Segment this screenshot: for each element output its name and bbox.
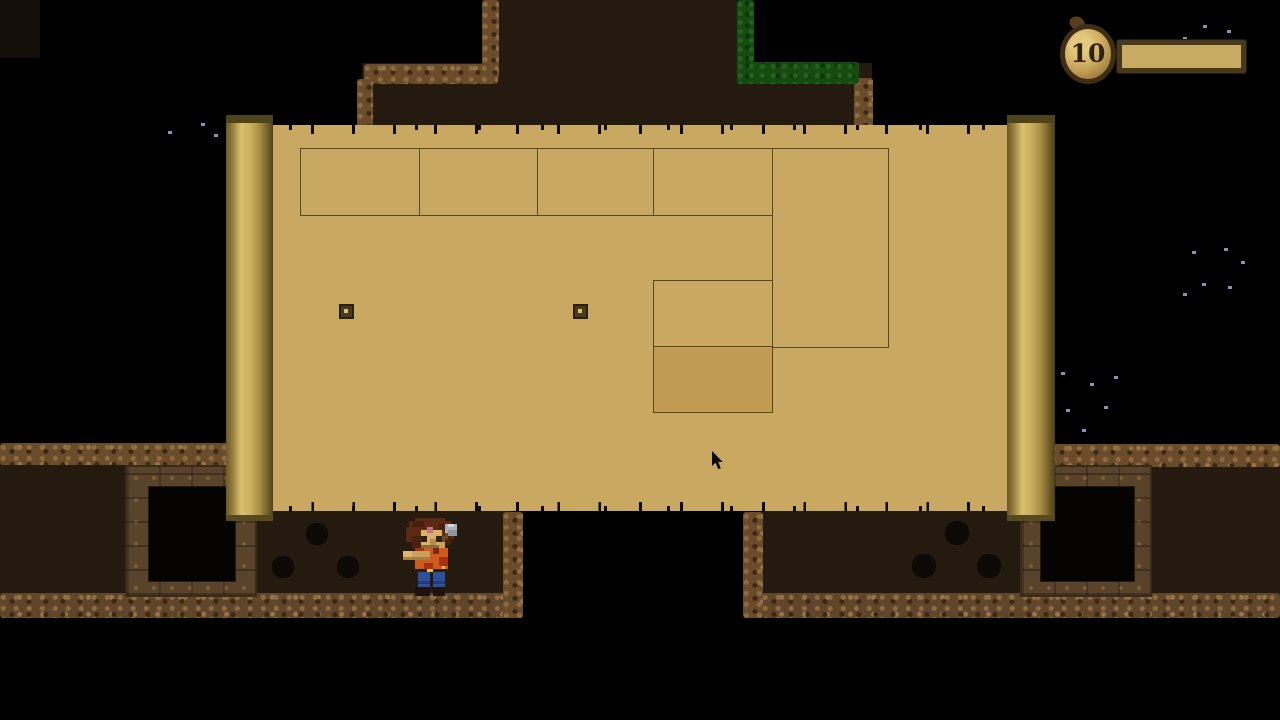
ceiling-rock-edge: [364, 64, 498, 84]
progress-bar: [1117, 40, 1246, 73]
cave-hole: [306, 523, 328, 545]
door-opening: [148, 486, 236, 582]
dust-particle: [1114, 376, 1118, 379]
map-room[interactable]: [419, 148, 538, 216]
dust-particle: [201, 123, 205, 126]
dust-particle: [1066, 409, 1070, 412]
map-pin: [573, 304, 588, 319]
map-room-current[interactable]: [653, 346, 773, 413]
dust-particle: [1228, 286, 1232, 289]
dust-particle: [168, 131, 172, 134]
dust-particle: [214, 134, 218, 137]
dust-particle: [1082, 429, 1086, 432]
map-room[interactable]: [653, 148, 773, 216]
ceiling-rock-edge: [357, 79, 373, 129]
scroll-roller-right: [1007, 115, 1055, 521]
cave-hole: [912, 554, 936, 578]
progress-bar-fill: [1122, 45, 1241, 68]
cave-hole: [337, 556, 359, 578]
dust-particle: [1203, 25, 1207, 28]
cave-hole: [977, 554, 1001, 578]
pit-rock-edge: [503, 512, 523, 618]
dust-particle: [1202, 283, 1206, 286]
dust-particle: [1192, 251, 1196, 254]
dust-particle: [1241, 261, 1245, 264]
pit-rock-edge: [743, 512, 763, 618]
dust-particle: [1224, 248, 1228, 251]
coin-counter: 10: [1060, 22, 1118, 86]
floor-rock-top-edge: [0, 443, 257, 465]
game-viewport: 10: [0, 0, 1280, 720]
dust-particle: [1227, 30, 1231, 33]
map-room[interactable]: [772, 148, 889, 348]
dust-particle: [1183, 293, 1187, 296]
dust-particle: [1104, 406, 1108, 409]
ceiling-rock-edge: [854, 78, 873, 129]
background-tile: [0, 0, 40, 58]
mouse-cursor: [711, 451, 725, 472]
coin-count: 10: [1060, 24, 1116, 82]
ceiling-dirt-column: [484, 0, 737, 70]
cave-hole: [945, 521, 969, 545]
player-character: [403, 518, 460, 602]
map-room[interactable]: [537, 148, 654, 216]
map-room[interactable]: [300, 148, 420, 216]
floor-rock-top-edge: [1050, 444, 1280, 467]
map-pin: [339, 304, 354, 319]
ceiling-moss-edge: [737, 62, 859, 84]
scroll-roller-left: [226, 115, 273, 521]
map-room[interactable]: [653, 280, 773, 347]
cave-hole: [272, 556, 294, 578]
dust-particle: [1061, 372, 1065, 375]
dust-particle: [1090, 383, 1094, 386]
ceiling-moss-edge: [737, 0, 754, 67]
